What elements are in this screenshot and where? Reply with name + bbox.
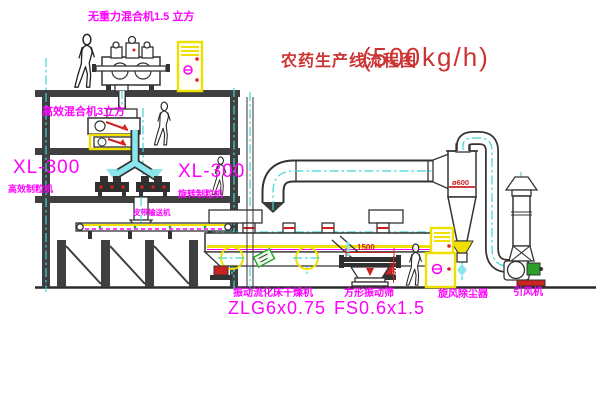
label-granulator-left-name: 高效制粒机 — [8, 185, 53, 194]
label-fan-name: 引风机 — [513, 288, 543, 298]
dimension-sieve-height: 540 — [388, 262, 396, 275]
dimension-sieve-length: 1500 — [357, 244, 375, 252]
discharge-valve-icon — [451, 241, 473, 253]
label-dryer-model: ZLG6x0.75 — [228, 299, 326, 317]
gravity-free-mixer — [92, 37, 170, 92]
worker-figure — [75, 34, 95, 87]
label-top-mixer: 无重力混合机1.5 立方 — [88, 12, 194, 23]
worker-figure — [154, 102, 170, 145]
diagram-title-capacity: (500kg/h) — [362, 44, 490, 70]
exhaust-duct — [261, 160, 440, 213]
fluid-bed-dryer-machine — [205, 210, 443, 280]
label-belt-conveyor: 皮带输送机 — [133, 209, 171, 217]
control-cabinet-ground — [426, 228, 455, 287]
induced-draft-fan-machine — [504, 261, 545, 286]
flow-diagram: 无重力混合机1.5 立方 农药生产线流程图 (500kg/h) 高效混合机3立方… — [0, 0, 600, 403]
fan-motor-icon — [527, 263, 540, 275]
label-granulator-left-model: XL-300 — [13, 158, 80, 177]
dimension-cyclone-diameter: ø600 — [452, 179, 469, 187]
control-cabinet-top — [178, 42, 202, 91]
label-granulator-mid-model: XL-300 — [178, 162, 245, 181]
label-sieve-model: FS0.6x1.5 — [334, 299, 425, 317]
label-floor2-mixer: 高效混合机3立方 — [42, 107, 125, 118]
label-granulator-mid-name: 旋转制粒机 — [178, 190, 223, 199]
exhaust-stack — [506, 177, 537, 261]
label-cyclone-name: 旋风除尘器 — [438, 290, 488, 300]
